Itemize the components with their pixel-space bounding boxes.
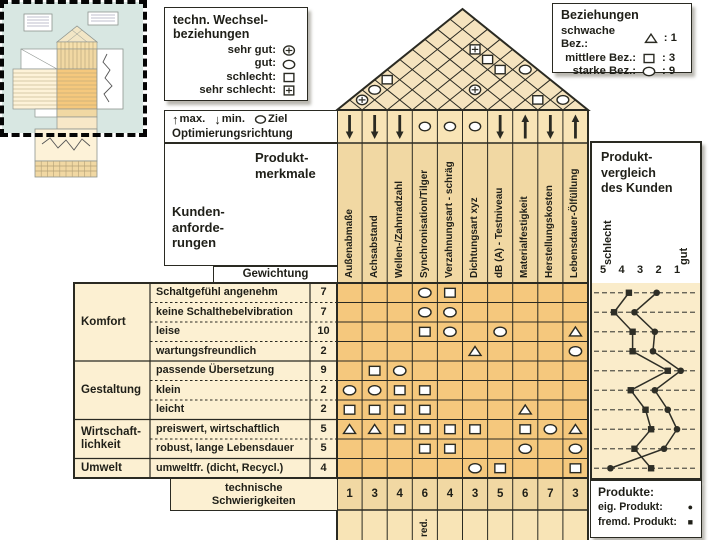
scale-tick: 3	[635, 264, 645, 276]
weight-value: 2	[310, 342, 337, 362]
customer-requirement: umweltfr. (dicht, Recycl.)	[151, 459, 309, 479]
legend-item-label: schlecht:	[226, 71, 276, 84]
customer-requirement: robust, lange Lebensdauer	[151, 439, 309, 459]
product-legend-label: fremd. Produkt:	[598, 515, 677, 530]
legend-item-label: gut:	[255, 57, 276, 70]
column-header-5: Verzahnungsart - schräg	[437, 143, 462, 283]
product-characteristics-label: Produkt- merkmale	[255, 150, 316, 181]
legend-item: schwache Bez.:: 1	[561, 25, 682, 52]
optimization-direction-header: ↑max.↓min.Ziel Optimierungsrichtung	[164, 110, 338, 143]
customer-requirement: preiswert, wirtschaftlich	[151, 420, 309, 440]
optimization-key-item: ↑max.	[172, 112, 205, 127]
scale-tick: 4	[617, 264, 627, 276]
comparison-title: Produkt- vergleich des Kunden	[601, 150, 673, 197]
scale-tick: 5	[598, 264, 608, 276]
optimization-key-label: Ziel	[268, 112, 287, 127]
optimization-key-item: Ziel	[254, 112, 287, 127]
difficulty-value: 4	[437, 478, 462, 510]
legend-item-label: sehr gut:	[228, 44, 276, 57]
circle-icon	[254, 114, 267, 125]
column-header-4: Synchronisation/Tilger	[412, 143, 437, 283]
legend-technical-correlations: techn. Wechsel- beziehungen sehr gut:gut…	[164, 7, 308, 101]
down-arrow-icon: ↓	[214, 112, 221, 127]
circle-icon	[280, 58, 298, 71]
product-comparison-panel: Produkt- vergleich des Kunden schlecht g…	[590, 141, 702, 480]
selection-dashed-border	[0, 0, 147, 137]
column-header-9: Herstellungskosten	[538, 143, 563, 283]
weight-value: 5	[310, 439, 337, 459]
difficulty-value: 6	[412, 478, 437, 510]
customer-requirement: wartungsfreundlich	[151, 342, 309, 362]
legend-item-value: : 9	[662, 65, 682, 78]
triangle-icon	[642, 32, 660, 45]
comparison-chart	[592, 283, 700, 478]
legend-item: gut:	[173, 57, 298, 70]
weight-value: 9	[310, 361, 337, 381]
legend-item: schlecht:	[173, 71, 298, 84]
column-header-10: Lebensdauer-Ölfüllung	[563, 143, 588, 283]
difficulty-value: 5	[488, 478, 513, 510]
difficulty-value: 4	[387, 478, 412, 510]
column-header-label: Herstellungskosten	[545, 185, 555, 278]
weight-value: 10	[310, 322, 337, 342]
legend-item: starke Bez.:: 9	[561, 65, 682, 78]
customer-requirement: leise	[151, 322, 309, 342]
requirement-group: Wirtschaft-lichkeit	[75, 420, 149, 459]
customer-requirement: Schaltgefühl angenehm	[151, 283, 309, 303]
legend-item-value: : 1	[664, 32, 682, 45]
qfd-house-of-quality: techn. Wechsel- beziehungen sehr gut:gut…	[0, 0, 720, 540]
legend-item: sehr schlecht:	[173, 84, 298, 97]
scale-label-schlecht: schlecht	[602, 220, 614, 265]
circle-icon	[640, 65, 658, 78]
square-marker-icon: ■	[688, 515, 693, 530]
customer-requirement: keine Schalthebelvibration	[151, 303, 309, 323]
products-legend: Produkte: eig. Produkt:●fremd. Produkt:■	[590, 480, 702, 538]
legend-item-label: schwache Bez.:	[561, 25, 638, 52]
customer-requirement: leicht	[151, 400, 309, 420]
requirement-group: Umwelt	[75, 459, 149, 479]
products-legend-title: Produkte:	[598, 485, 693, 500]
scale-tick: 1	[672, 264, 682, 276]
square-plus-icon	[280, 84, 298, 97]
legend-item-label: mittlere Bez.:	[565, 52, 636, 65]
legend-tech-title: techn. Wechsel- beziehungen	[173, 13, 298, 41]
column-header-8: Materialfestigkeit	[513, 143, 538, 283]
legend-item-label: sehr schlecht:	[199, 84, 276, 97]
product-legend-label: eig. Produkt:	[598, 500, 663, 515]
circle-plus-icon	[280, 44, 298, 57]
column-header-7: dB (A) - Testniveau	[488, 143, 513, 283]
column-header-2: Achsabstand	[362, 143, 387, 283]
requirement-group: Gestaltung	[75, 361, 149, 420]
difficulty-value: 6	[513, 478, 538, 510]
column-header-label: Wellen-/Zahnradzahl	[395, 181, 405, 278]
scale-label-gut: gut	[678, 248, 690, 265]
difficulty-value: 3	[362, 478, 387, 510]
optimization-key-label: min.	[222, 112, 245, 127]
column-header-6: Dichtungsart xyz	[463, 143, 488, 283]
column-header-label: Materialfestigkeit	[520, 196, 530, 278]
product-legend-item: fremd. Produkt:■	[598, 515, 693, 530]
weight-value: 7	[310, 283, 337, 303]
difficulty-value: 3	[463, 478, 488, 510]
scale-tick: 2	[654, 264, 664, 276]
weight-value: 5	[310, 420, 337, 440]
square-icon	[280, 71, 298, 84]
column-header-label: Synchronisation/Tilger	[420, 170, 430, 278]
optimization-key-label: max.	[180, 112, 206, 127]
requirement-group: Komfort	[75, 283, 149, 361]
customer-requirements-label: Kunden- anforde- rungen	[172, 204, 225, 251]
product-legend-item: eig. Produkt:●	[598, 500, 693, 515]
difficulty-value: 7	[538, 478, 563, 510]
up-arrow-icon: ↑	[172, 112, 179, 127]
technical-difficulty-label: technische Schwierigkeiten	[170, 478, 338, 511]
legend-item: mittlere Bez.:: 3	[561, 52, 682, 65]
circle-marker-icon: ●	[688, 500, 693, 515]
legend-relations-title: Beziehungen	[561, 8, 682, 22]
square-icon	[640, 52, 658, 65]
column-header-label: Dichtungsart xyz	[470, 197, 480, 278]
customer-requirement: klein	[151, 381, 309, 401]
column-header-1: Außenabmaße	[337, 143, 362, 283]
column-header-3: Wellen-/Zahnradzahl	[387, 143, 412, 283]
legend-relations: Beziehungen schwache Bez.:: 1mittlere Be…	[552, 3, 692, 73]
legend-item: sehr gut:	[173, 44, 298, 57]
column-header-label: Außenabmaße	[345, 209, 355, 278]
column-header-label: Lebensdauer-Ölfüllung	[570, 169, 580, 278]
column-header-label: Verzahnungsart - schräg	[445, 161, 455, 278]
legend-item-value: : 3	[662, 52, 682, 65]
difficulty-value: 1	[337, 478, 362, 510]
column-header-label: Achsabstand	[370, 215, 380, 278]
optimization-title: Optimierungsrichtung	[172, 127, 330, 141]
weight-value: 7	[310, 303, 337, 323]
difficulty-value: 3	[563, 478, 588, 510]
legend-item-label: starke Bez.:	[573, 65, 636, 78]
column-header-label: dB (A) - Testniveau	[495, 188, 505, 278]
weight-value: 4	[310, 459, 337, 479]
reduced-note: red.	[419, 519, 430, 537]
weight-value: 2	[310, 400, 337, 420]
optimization-key-item: ↓min.	[214, 112, 245, 127]
matrix-corner: Produkt- merkmale Kunden- anforde- runge…	[164, 143, 338, 266]
weight-value: 2	[310, 381, 337, 401]
weighting-header: Gewichtung	[213, 266, 338, 283]
customer-requirement: passende Übersetzung	[151, 361, 309, 381]
